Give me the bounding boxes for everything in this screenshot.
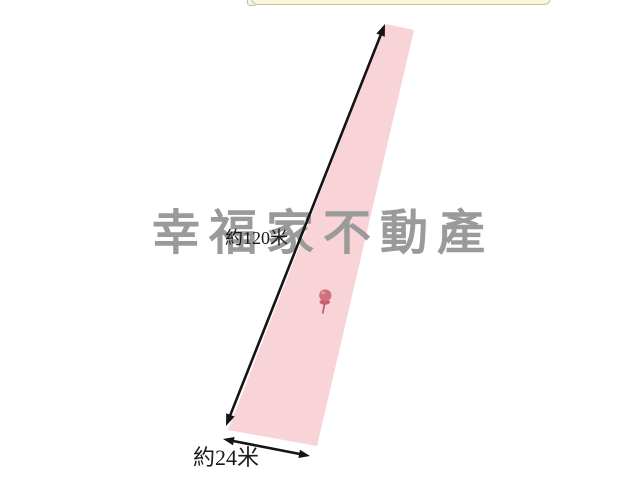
width-arrowhead-right (298, 450, 310, 458)
pushpin-highlight (321, 292, 325, 295)
length-arrowhead-top (376, 24, 385, 37)
length-arrow (226, 24, 385, 426)
pushpin-icon (319, 289, 331, 313)
width-dimension-label: 約24米 (193, 445, 259, 471)
land-diagram-canvas: 幸福家不動產 約120米 約24米 (0, 0, 640, 480)
tooltip-bar (251, 0, 551, 5)
annotation-layer (0, 0, 640, 480)
length-arrowhead-bottom (226, 413, 235, 426)
length-dimension-label: 約120米 (225, 227, 288, 249)
width-arrowhead-left (223, 437, 235, 445)
